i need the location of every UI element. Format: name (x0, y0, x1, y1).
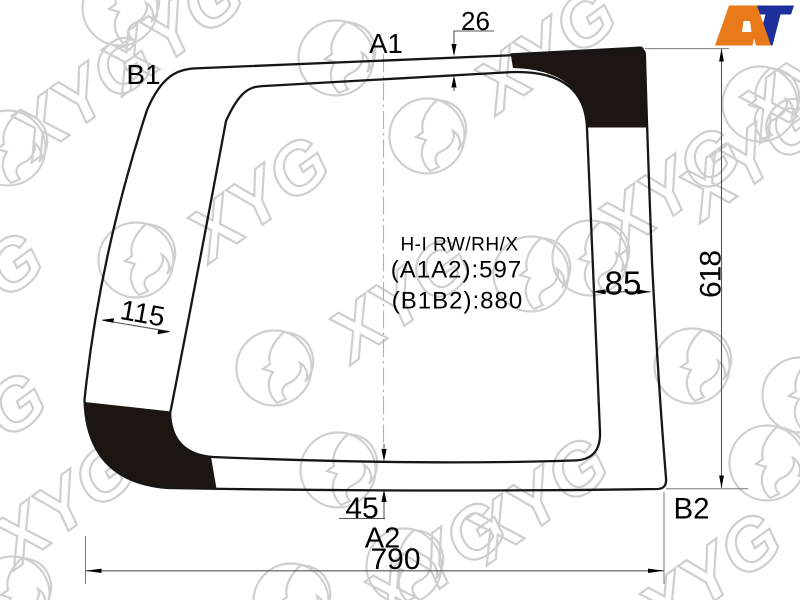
svg-text:B1: B1 (126, 59, 160, 90)
svg-text:85: 85 (605, 265, 642, 302)
svg-text:(A1A2):597: (A1A2):597 (391, 257, 522, 284)
svg-text:115: 115 (118, 294, 167, 332)
svg-text:H-I RW/RH/X: H-I RW/RH/X (400, 235, 518, 256)
svg-text:A2: A2 (365, 523, 400, 555)
svg-text:(B1B2):880: (B1B2):880 (392, 288, 523, 315)
svg-text:A1: A1 (369, 28, 403, 59)
svg-text:B2: B2 (673, 493, 709, 526)
svg-text:45: 45 (345, 492, 378, 525)
svg-text:26: 26 (461, 6, 490, 36)
svg-text:618: 618 (695, 251, 728, 298)
